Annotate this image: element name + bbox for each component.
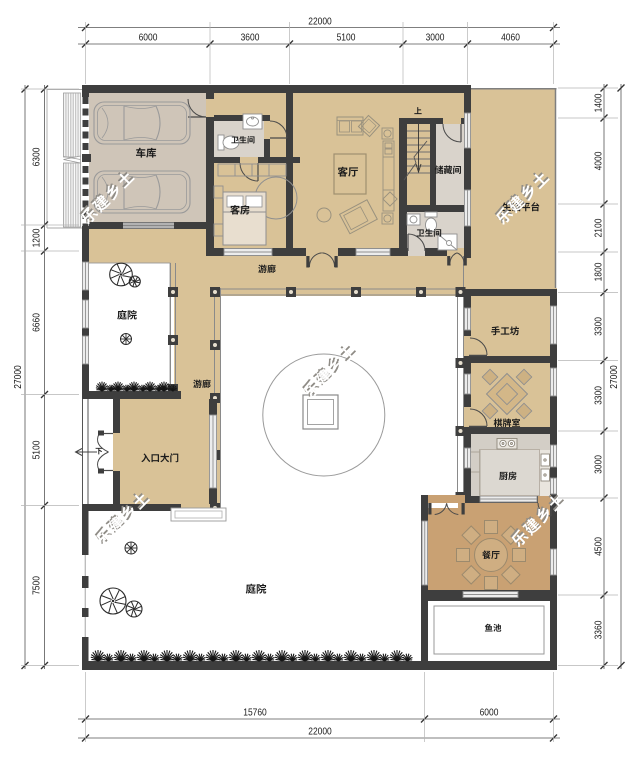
- svg-text:7500: 7500: [30, 576, 42, 595]
- svg-text:3600: 3600: [241, 31, 260, 43]
- svg-text:22000: 22000: [308, 725, 332, 737]
- svg-text:1200: 1200: [30, 228, 42, 247]
- svg-text:6000: 6000: [480, 706, 499, 718]
- svg-text:27000: 27000: [12, 365, 24, 389]
- svg-text:3000: 3000: [426, 31, 445, 43]
- svg-text:2100: 2100: [592, 218, 604, 237]
- svg-text:4000: 4000: [592, 151, 604, 170]
- svg-text:5100: 5100: [30, 440, 42, 459]
- svg-text:3000: 3000: [592, 455, 604, 474]
- svg-text:22000: 22000: [308, 15, 332, 27]
- svg-text:6660: 6660: [30, 313, 42, 332]
- svg-text:27000: 27000: [608, 365, 620, 389]
- svg-text:4500: 4500: [592, 537, 604, 556]
- svg-text:1400: 1400: [592, 93, 604, 112]
- svg-text:3300: 3300: [592, 386, 604, 405]
- svg-text:15760: 15760: [243, 706, 267, 718]
- svg-text:6300: 6300: [30, 147, 42, 166]
- svg-text:1800: 1800: [592, 262, 604, 281]
- svg-text:5100: 5100: [337, 31, 356, 43]
- svg-text:6000: 6000: [139, 31, 158, 43]
- svg-text:3300: 3300: [592, 317, 604, 336]
- svg-text:4060: 4060: [501, 31, 520, 43]
- svg-text:3360: 3360: [592, 620, 604, 639]
